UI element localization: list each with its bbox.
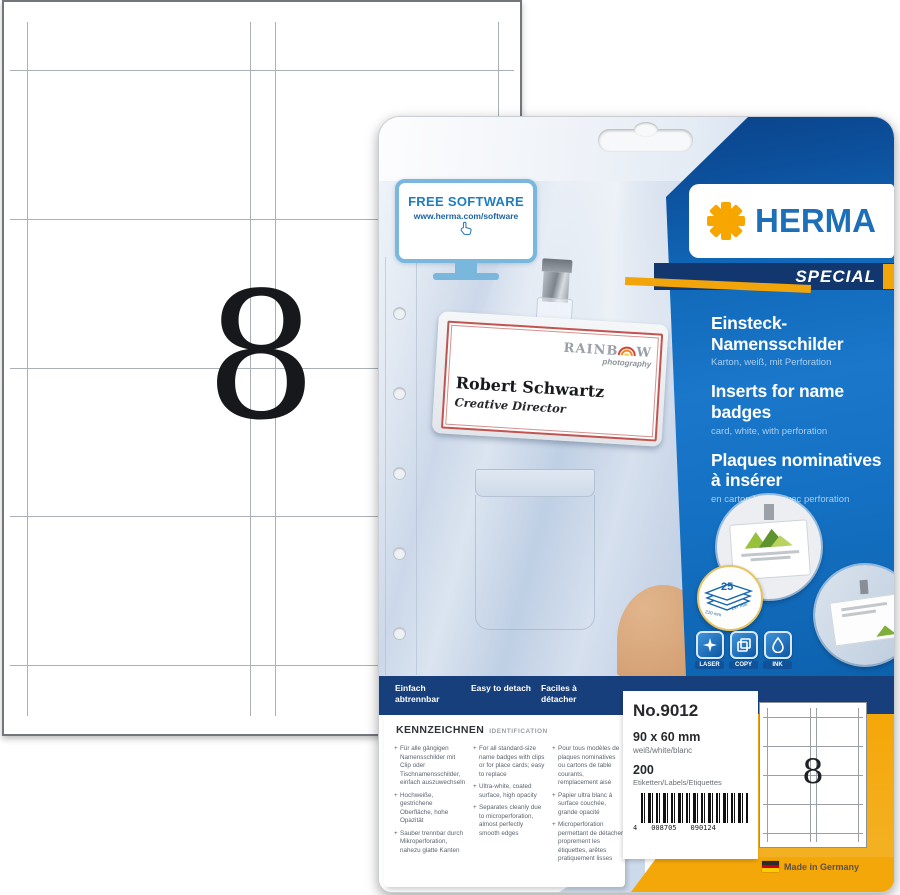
feature-item: Ultra-white, coated surface, high opacit… <box>473 783 545 800</box>
laser-label: LASER <box>695 661 724 669</box>
rainbow-logo-text: RAINB <box>563 341 619 359</box>
accent-yellow-notch <box>883 264 894 289</box>
product-title-de: Einsteck-Namensschilder <box>711 313 893 354</box>
badge-card: RAINBW photography Robert Schwartz Creat… <box>441 321 663 442</box>
mini-grid-line <box>763 746 863 747</box>
sample-logo-icon <box>873 623 895 638</box>
product-color: weiß/white/blanc <box>633 746 748 755</box>
shirt-pocket-flap <box>475 469 595 497</box>
hand-pointer-icon <box>460 221 473 235</box>
stacked-sheets-icon: 25 210 mm 297 mm <box>699 567 757 625</box>
free-software-url: www.herma.com/software <box>399 211 533 221</box>
shirt-pocket <box>475 495 595 630</box>
package: FREE SOFTWARE www.herma.com/software RAI… <box>378 116 895 893</box>
ink-tile: INK <box>763 631 792 669</box>
herma-wordmark: HERMA <box>755 202 876 240</box>
feature-item: Pour tous modèles de plaques nominatives… <box>552 745 624 788</box>
sample-text-line <box>841 602 887 611</box>
shirt-button <box>393 307 406 320</box>
heading-en: IDENTIFICATION <box>489 728 548 735</box>
shirt-button <box>393 627 406 640</box>
rainbow-logo: RAINBW photography <box>563 339 653 369</box>
rainbow-arc-icon <box>618 345 637 356</box>
detach-label-en: Easy to detach <box>471 683 535 694</box>
feature-item: Microperforation permettant de détacher … <box>552 821 624 864</box>
feature-columns: Für alle gängigen Namensschilder mit Cli… <box>394 745 624 868</box>
badge-clip-icon <box>764 504 774 520</box>
shirt-button <box>393 387 406 400</box>
printer-compatibility: LASER COPY INK <box>695 631 792 669</box>
kennzeichnen-heading: KENNZEICHNENIDENTIFICATION <box>396 724 548 736</box>
barcode-digit-group: 090124 <box>691 824 716 832</box>
made-in-germany: Made in Germany <box>762 861 859 872</box>
badge-role: Creative Director <box>454 395 566 416</box>
product-count-label: Etiketten/Labels/Etiquettes <box>633 778 748 787</box>
product-title-fr: Plaques nominatives à insérer <box>711 450 893 491</box>
shirt-button <box>393 547 406 560</box>
hanger-hole <box>598 129 693 152</box>
badge-holder: RAINBW photography Robert Schwartz Creat… <box>432 311 669 447</box>
german-flag-icon <box>762 861 779 872</box>
barcode-digits: 4 008705 090124 <box>633 824 748 832</box>
mini-grid-line <box>763 717 863 718</box>
sample-text-line <box>842 610 876 618</box>
sheet-count-number: 25 <box>721 581 733 593</box>
sheet-grid-line <box>27 22 28 716</box>
product-title-en: Inserts for name badges <box>711 381 893 422</box>
sheet-grid-line <box>10 70 514 71</box>
product-count: 200 <box>633 763 748 777</box>
laser-icon <box>696 631 724 659</box>
product-info-box: No.9012 90 x 60 mm weiß/white/blanc 200 … <box>623 691 758 859</box>
product-titles: Einsteck-Namensschilder Karton, weiß, mi… <box>711 313 893 518</box>
feature-column-de: Für alle gängigen Namensschilder mit Cli… <box>394 745 466 868</box>
product-shot: 8 FREE SOFTWARE www.herma.com/software <box>0 0 900 895</box>
feature-column-fr: Pour tous modèles de plaques nominatives… <box>552 745 624 868</box>
barcode-digit-group: 008705 <box>651 824 676 832</box>
feature-column-en: For all standard-size name badges with c… <box>473 745 545 868</box>
ink-label: INK <box>763 661 792 669</box>
mini-sheet-count: 8 <box>760 755 866 789</box>
product-size: 90 x 60 mm <box>633 730 748 744</box>
shirt-button <box>393 467 406 480</box>
heading-de: KENNZEICHNEN <box>396 724 484 736</box>
feature-item: Separates cleanly due to microperforatio… <box>473 804 545 838</box>
laser-tile: LASER <box>695 631 724 669</box>
herma-logo-box: HERMA <box>689 184 894 258</box>
copy-label: COPY <box>729 661 758 669</box>
barcode <box>641 793 748 823</box>
sheet-count: 8 <box>196 270 326 445</box>
feature-item: For all standard-size name badges with c… <box>473 745 545 779</box>
mini-grid-line <box>763 833 863 834</box>
feature-item: Für alle gängigen Namensschilder mit Cli… <box>394 745 466 788</box>
sheet-dim-width: 210 mm <box>705 609 722 617</box>
sheet-count-icon: 25 210 mm 297 mm <box>697 565 763 631</box>
feature-item: Papier ultra blanc à surface couchée, gr… <box>552 792 624 818</box>
detach-label-fr: Faciles à détacher <box>541 683 605 704</box>
product-subtitle-en: card, white, with perforation <box>711 426 893 437</box>
feature-item: Hochweiße, gestrichene Oberfläche, hohe … <box>394 792 466 826</box>
sample-logo-icon <box>741 525 796 551</box>
mini-sheet-diagram: 8 <box>759 702 867 848</box>
badge-clip-icon <box>860 580 869 595</box>
detach-label-de: Einfach abtrennbar <box>395 683 459 704</box>
feature-item: Sauber trennbar durch Mikroperforation, … <box>394 830 466 856</box>
sample-badge-card <box>829 593 895 646</box>
mini-grid-line <box>763 804 863 805</box>
features-card: KENNZEICHNENIDENTIFICATION Für alle gäng… <box>384 715 625 887</box>
free-software-title: FREE SOFTWARE <box>399 194 533 209</box>
product-number: No.9012 <box>633 701 748 721</box>
copy-icon <box>730 631 758 659</box>
product-subtitle-de: Karton, weiß, mit Perforation <box>711 357 893 368</box>
herma-star-icon <box>707 202 745 240</box>
product-subtitle-fr: en carton blanc, avec perforation <box>711 494 893 505</box>
sample-text-line <box>751 556 791 562</box>
monitor-icon: FREE SOFTWARE www.herma.com/software <box>395 179 537 263</box>
ink-icon <box>764 631 792 659</box>
copy-tile: COPY <box>729 631 758 669</box>
made-in-label: Made in Germany <box>784 862 859 872</box>
barcode-digit-group: 4 <box>633 824 637 832</box>
